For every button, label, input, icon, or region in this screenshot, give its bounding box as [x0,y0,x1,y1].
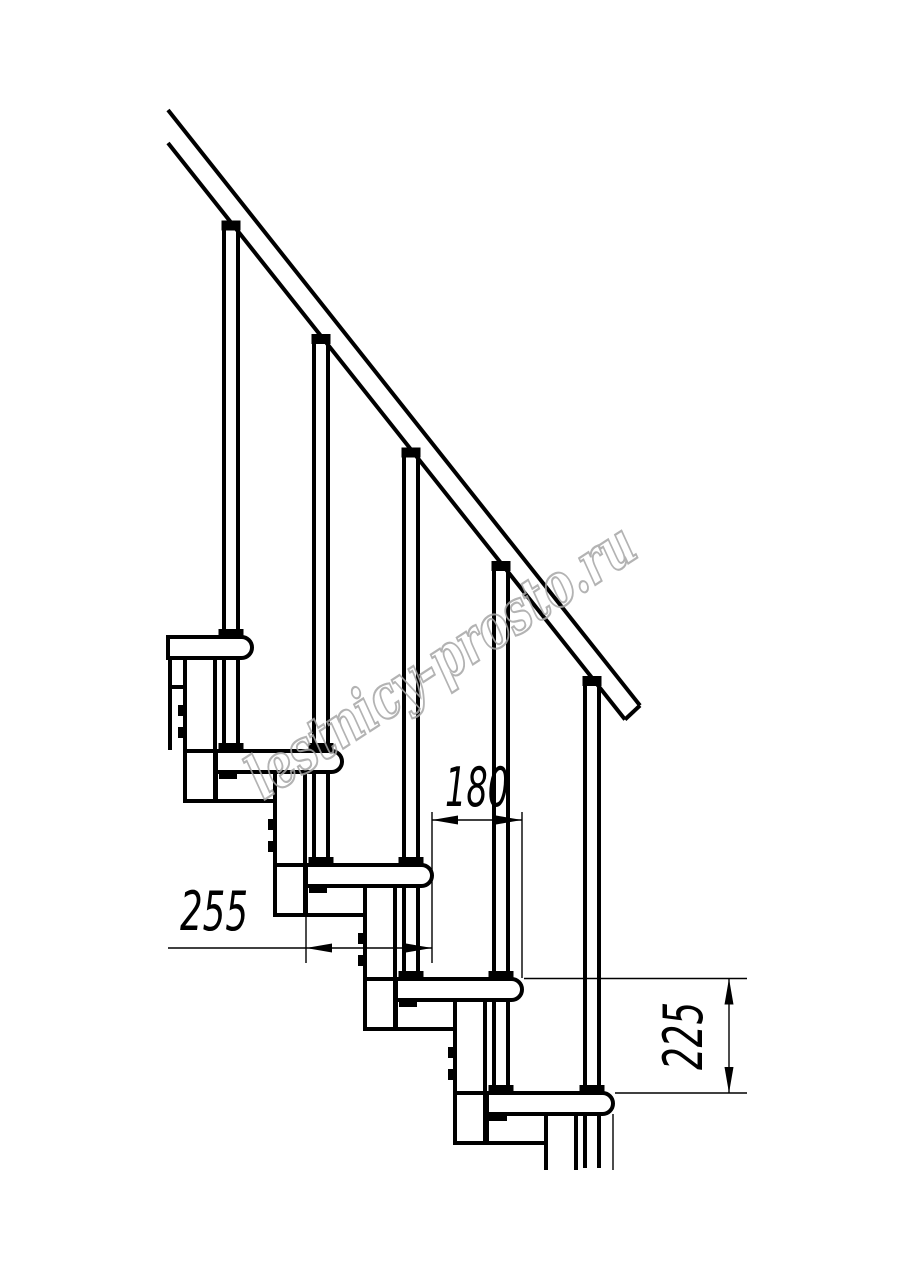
tread [396,979,522,1000]
handrail-end-cap [625,706,640,720]
module-web [365,886,395,1029]
dimension-180-label: 180 [445,756,509,819]
module-web [185,658,215,801]
tread [487,1093,613,1114]
dimension-225-label: 225 [652,1002,715,1070]
dimension-255-label: 255 [180,880,248,943]
dimension-225: 225 [524,979,747,1171]
drawing-canvas: 180 255 225 lestnicy-prosto.ru [0,0,914,1280]
arrowhead [306,944,332,953]
arrowhead [725,1067,734,1093]
tread [306,865,432,886]
staircase-drawing: 180 255 225 lestnicy-prosto.ru [0,0,914,1280]
module-web [455,1000,485,1143]
arrowhead [725,979,734,1005]
tread [168,637,252,658]
